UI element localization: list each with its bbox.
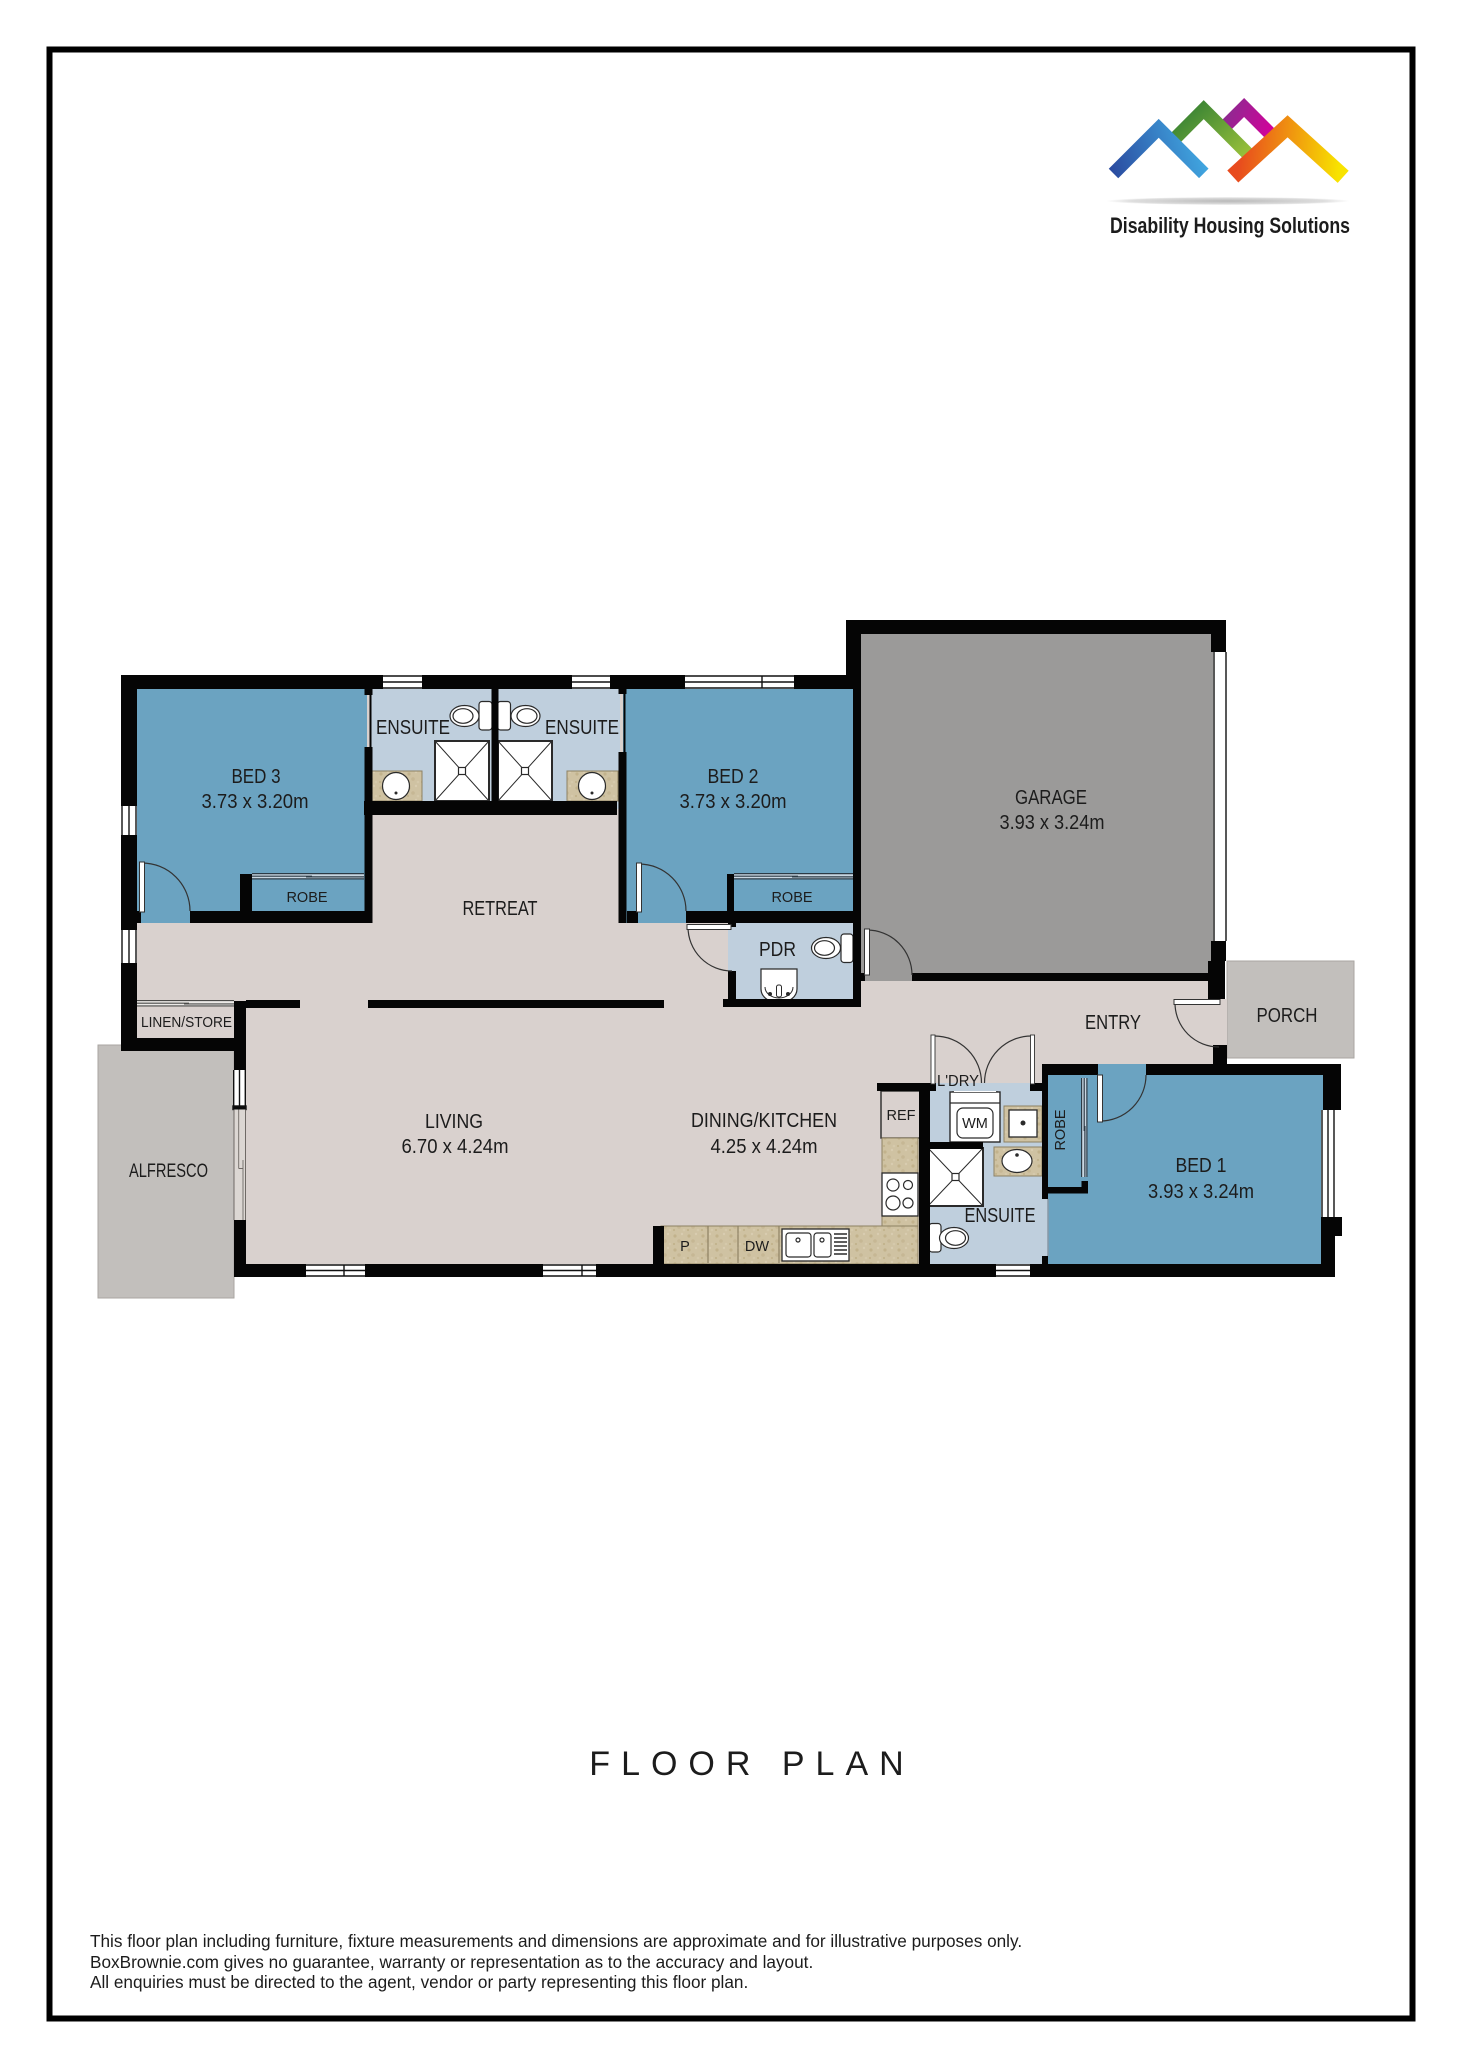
svg-text:DW: DW: [745, 1239, 769, 1255]
svg-text:ALFRESCO: ALFRESCO: [129, 1161, 208, 1182]
svg-text:LIVING: LIVING: [425, 1111, 483, 1133]
svg-text:3.93 x 3.24m: 3.93 x 3.24m: [1148, 1181, 1254, 1203]
svg-text:3.73 x 3.20m: 3.73 x 3.20m: [202, 791, 309, 813]
svg-text:4.25 x 4.24m: 4.25 x 4.24m: [711, 1136, 818, 1158]
svg-text:WM: WM: [962, 1116, 988, 1132]
svg-text:P: P: [680, 1239, 690, 1255]
svg-text:Disability Housing Solutions: Disability Housing Solutions: [1110, 213, 1350, 238]
svg-text:RETREAT: RETREAT: [463, 898, 538, 920]
svg-text:REF: REF: [887, 1108, 916, 1124]
svg-text:L'DRY: L'DRY: [937, 1073, 979, 1090]
svg-text:FLOOR PLAN: FLOOR PLAN: [589, 1745, 914, 1783]
svg-text:ENSUITE: ENSUITE: [965, 1205, 1036, 1227]
svg-text:All enquiries must be directed: All enquiries must be directed to the ag…: [90, 1972, 748, 1992]
svg-text:This floor plan including furn: This floor plan including furniture, fix…: [90, 1931, 1022, 1951]
svg-text:BED 2: BED 2: [708, 766, 759, 788]
svg-text:PDR: PDR: [759, 939, 796, 961]
svg-text:6.70 x 4.24m: 6.70 x 4.24m: [402, 1136, 509, 1158]
svg-text:BoxBrownie.com gives no guaran: BoxBrownie.com gives no guarantee, warra…: [90, 1952, 813, 1972]
svg-text:3.93 x 3.24m: 3.93 x 3.24m: [1000, 812, 1105, 834]
svg-text:ROBE: ROBE: [771, 890, 812, 906]
svg-text:BED 3: BED 3: [232, 766, 281, 788]
svg-text:ENSUITE: ENSUITE: [376, 717, 450, 739]
svg-text:BED 1: BED 1: [1176, 1155, 1227, 1177]
svg-text:3.73 x 3.20m: 3.73 x 3.20m: [680, 791, 787, 813]
svg-text:ENTRY: ENTRY: [1085, 1012, 1141, 1034]
svg-text:DINING/KITCHEN: DINING/KITCHEN: [691, 1110, 837, 1132]
svg-text:ROBE: ROBE: [1053, 1109, 1069, 1150]
svg-text:ROBE: ROBE: [286, 890, 327, 906]
svg-text:ENSUITE: ENSUITE: [545, 717, 619, 739]
svg-text:PORCH: PORCH: [1257, 1005, 1318, 1027]
svg-text:LINEN/STORE: LINEN/STORE: [141, 1015, 232, 1031]
svg-text:GARAGE: GARAGE: [1015, 787, 1087, 809]
